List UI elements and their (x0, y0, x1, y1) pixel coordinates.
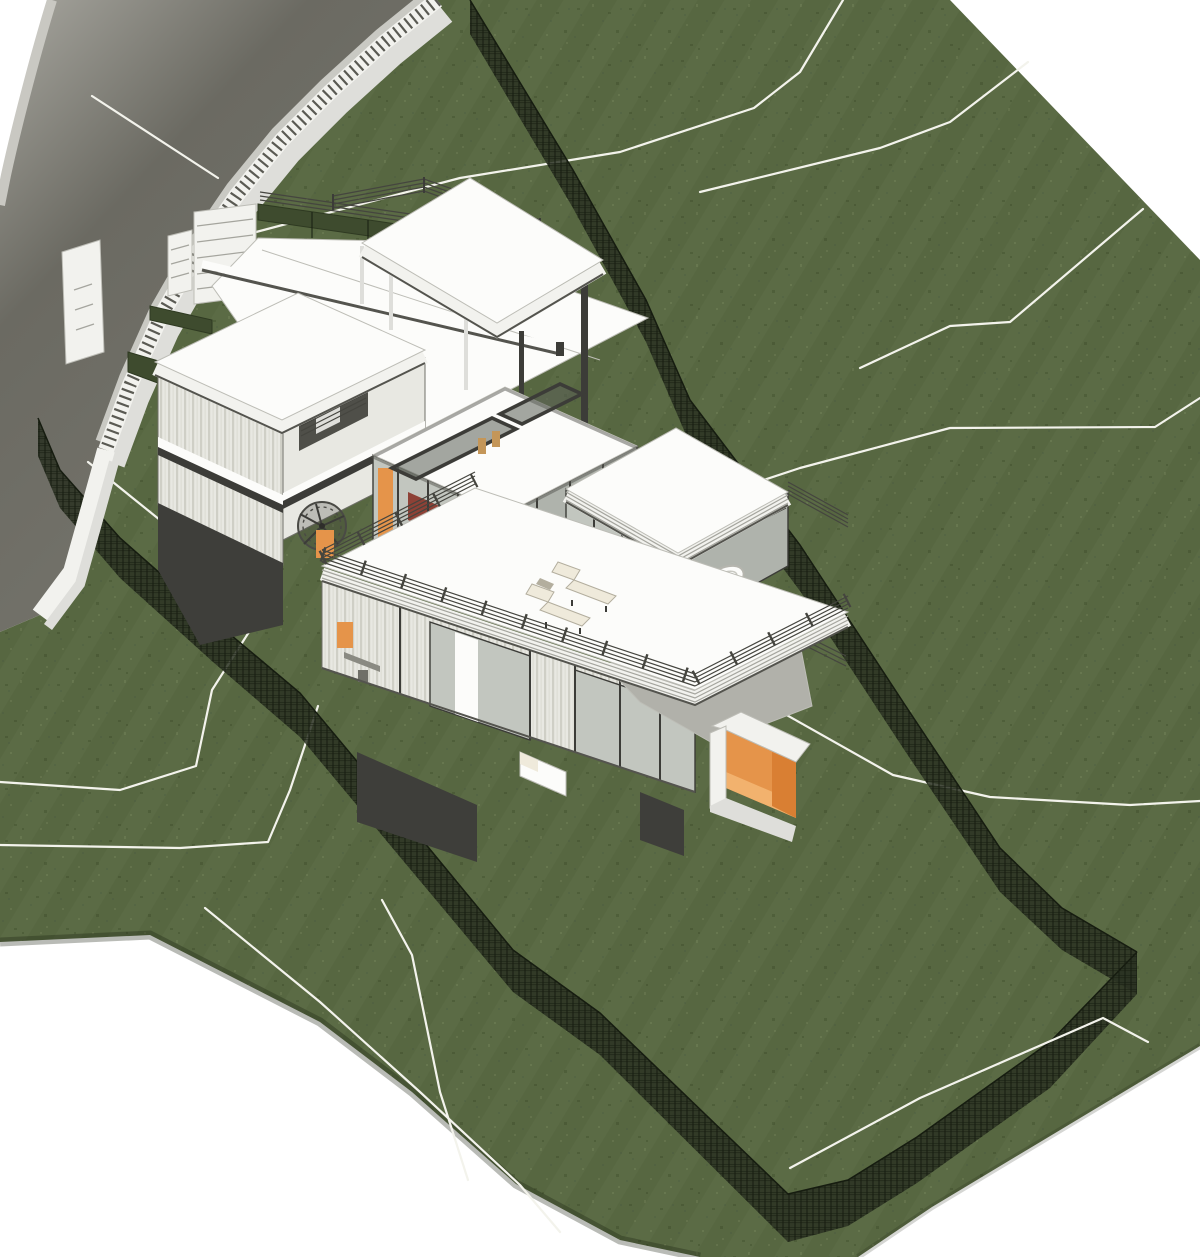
gate-side-panel (168, 230, 192, 296)
entry-pillar (62, 240, 104, 364)
rendering-canvas (0, 0, 1200, 1257)
parapet-end (556, 342, 564, 356)
entry-box-side (710, 726, 726, 808)
site-3d-view (0, 0, 1200, 1257)
canopy-column (581, 266, 588, 424)
bedroom-orange-panel (337, 622, 353, 648)
curtain (455, 632, 478, 722)
bar-stool (478, 438, 486, 454)
bar-stool (492, 431, 500, 447)
